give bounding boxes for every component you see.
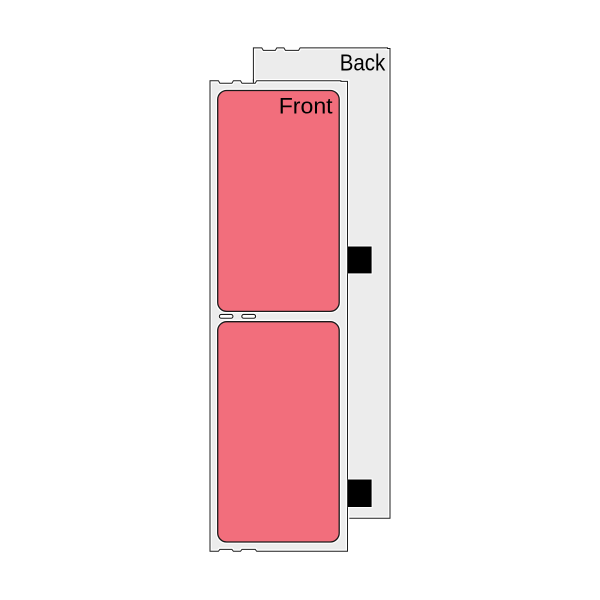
svg-text:Front: Front (279, 94, 334, 118)
svg-text:Back: Back (340, 49, 386, 75)
